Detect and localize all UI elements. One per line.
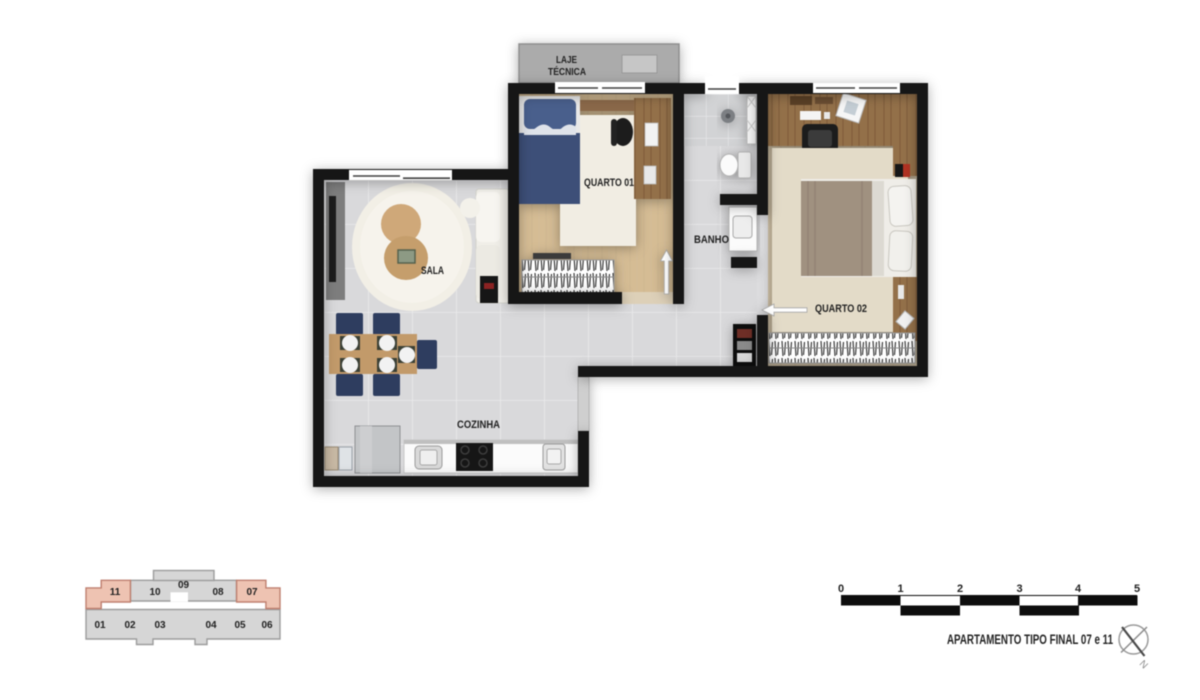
svg-text:01: 01 <box>94 620 106 631</box>
svg-text:LAJE: LAJE <box>556 55 577 66</box>
svg-text:2: 2 <box>957 583 963 595</box>
svg-text:APARTAMENTO TIPO FINAL 07 e 11: APARTAMENTO TIPO FINAL 07 e 11 <box>947 632 1113 647</box>
svg-text:11: 11 <box>110 587 121 598</box>
svg-text:3: 3 <box>1016 583 1022 595</box>
svg-text:06: 06 <box>261 620 273 631</box>
svg-text:BANHO: BANHO <box>694 234 729 246</box>
svg-text:04: 04 <box>205 620 217 631</box>
svg-text:05: 05 <box>234 620 246 631</box>
svg-text:09: 09 <box>178 580 190 591</box>
svg-text:10: 10 <box>149 587 161 598</box>
svg-text:08: 08 <box>212 587 224 598</box>
svg-text:07: 07 <box>246 587 258 598</box>
svg-text:0: 0 <box>838 583 844 595</box>
svg-text:QUARTO 02: QUARTO 02 <box>815 303 867 315</box>
svg-text:03: 03 <box>154 620 166 631</box>
svg-text:5: 5 <box>1134 583 1140 595</box>
svg-text:4: 4 <box>1075 583 1082 595</box>
svg-text:02: 02 <box>124 620 136 631</box>
svg-text:TÉCNICA: TÉCNICA <box>548 65 586 78</box>
svg-text:COZINHA: COZINHA <box>457 419 500 431</box>
svg-text:QUARTO 01: QUARTO 01 <box>584 177 634 189</box>
svg-text:1: 1 <box>897 583 903 595</box>
svg-text:SALA: SALA <box>421 265 444 277</box>
